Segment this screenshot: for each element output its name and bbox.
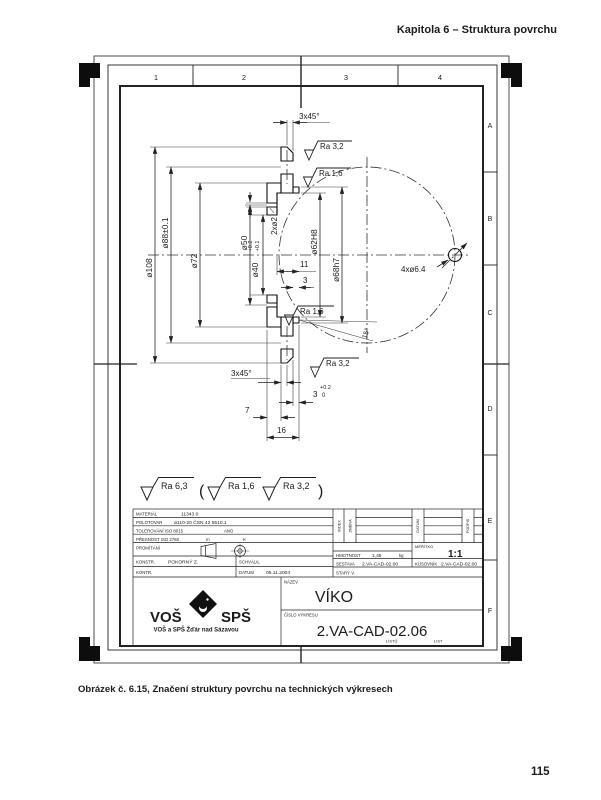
promitani-label: PROMÍTÁNÍ: [136, 546, 161, 551]
hmotnost-unit: kg: [399, 553, 404, 558]
meritko-value: 1:1: [448, 549, 463, 560]
presnost-m: m: [206, 537, 210, 542]
corner-mark-bottom-left: [79, 637, 100, 661]
datum-col-label: DATUM: [416, 519, 420, 532]
corner-mark-top-right: [501, 63, 522, 87]
zmena-label: ZMĚNA: [348, 519, 353, 533]
surface-note-paren-open: (: [199, 483, 205, 500]
figure-caption: Obrázek č. 6.15, Značení struktury povrc…: [78, 684, 393, 695]
datum-value: 05.11.2004: [266, 570, 290, 576]
part-boss-top: [267, 183, 281, 203]
surface-note-paren-close: ): [318, 483, 323, 500]
dim-len7: 7: [245, 406, 250, 415]
page: Kapitola 6 – Struktura povrchu Obrázek č…: [0, 0, 601, 800]
surface-note-alt2: Ra 3,2: [283, 481, 310, 491]
surface-note: Ra 6,3 ( Ra 1,6 Ra 3,2 ): [141, 478, 323, 501]
meritko-label: MĚŘÍTKO: [415, 544, 433, 549]
zone-row-f: F: [488, 608, 492, 615]
dim-d108: ø108: [144, 258, 154, 278]
dim-d40-hi: +0.2: [248, 241, 254, 252]
title-block: MATERIÁL 11343.0 POLOTOVAR ø110-20 ČSN 4…: [133, 509, 483, 646]
chapter-header: Kapitola 6 – Struktura povrchu: [397, 24, 557, 36]
konstr-label: KONSTR.: [136, 560, 155, 565]
ra32-top: Ra 3,2: [320, 142, 344, 151]
hmotnost-label: HMOTNOST: [336, 553, 361, 558]
outer-border: [108, 65, 497, 650]
kusovnik-label: KUSOVNÍK: [415, 562, 437, 567]
podpis-label: PODPIS: [466, 518, 470, 533]
surface-note-alt1: Ra 1,6: [228, 481, 255, 491]
material-label: MATERIÁL: [136, 512, 158, 517]
nazev-value: VÍKO: [315, 587, 353, 606]
part-hub-ring-bottom: [293, 317, 299, 323]
material-value: 11343.0: [181, 512, 199, 518]
page-number: 115: [531, 766, 550, 778]
dim-holes: 4xø6.4: [401, 265, 426, 274]
dim-d2: 2xø2: [270, 217, 279, 235]
listu-label: LISTŮ: [386, 639, 397, 644]
datum-label: DATUM: [239, 570, 254, 575]
zone-row-c: C: [487, 310, 492, 317]
dim-tol3-val: 3: [313, 390, 318, 399]
ra16-top: Ra 1,6: [319, 169, 343, 178]
surface-note-main: Ra 6,3: [161, 481, 188, 491]
stary-label: STARÝ V.: [336, 571, 355, 576]
logo-sps: SPŠ: [221, 608, 251, 626]
surface-marks: Ra 3,2 Ra 1,6 Ra 1,6 Ra 3,2: [285, 141, 360, 377]
zone-col-4: 4: [438, 73, 442, 82]
dim-chamfer-bot: 3x45°: [231, 369, 252, 378]
ra16-bot: Ra 1,6: [300, 307, 324, 316]
school-logo: VOŠ SPŠ VOŠ a SPŠ Žďár nad Sázavou: [150, 590, 251, 634]
dim-d88: ø88±0.1: [160, 217, 170, 248]
sestava-label: SESTAVA: [336, 562, 355, 567]
kusovnik-value: 2.VA-CAD-02.00: [441, 562, 477, 568]
dim-angle15: 15°: [361, 327, 372, 340]
part-boss-bottom: [267, 307, 281, 327]
logo-vos: VOŠ: [150, 608, 182, 626]
cislo-value: 2.VA-CAD-02.06: [317, 623, 428, 640]
schvalil-label: SCHVÁLIL: [239, 560, 260, 565]
dim-d40: ø40: [250, 262, 260, 277]
index-label: INDEX: [338, 520, 342, 532]
zone-row-b: B: [488, 216, 493, 223]
part-hub-ring-top: [293, 187, 299, 193]
polotovar-value: ø110-20 ČSN 42 5510.1: [174, 519, 227, 526]
zone-col-3: 3: [344, 73, 348, 82]
logo-tagline: VOŠ a SPŠ Žďár nad Sázavou: [153, 626, 238, 634]
dim-len11: 11: [300, 260, 309, 269]
zone-col-2: 2: [242, 73, 246, 82]
zone-col-1: 1: [154, 73, 158, 82]
dimensions: ø108 ø88±0.1 ø72 ø50 ø40 +0.2 +0.1 2xø2 …: [144, 112, 348, 441]
dim-tol3-lo: 0: [322, 393, 326, 399]
hmotnost-value: 1,49: [372, 553, 382, 559]
kontr-label: KONTR.: [136, 570, 152, 575]
tolerovani-value: ANO: [224, 529, 234, 534]
corner-mark-bottom-right: [501, 637, 522, 661]
cislo-label: ČÍSLO VÝKRESU: [284, 613, 318, 618]
polotovar-label: POLOTOVAR: [136, 520, 162, 525]
zone-row-a: A: [488, 123, 493, 130]
dim-len16: 16: [277, 426, 286, 435]
dim-d68: ø68h7: [331, 258, 341, 282]
dim-d40-lo: +0.1: [255, 241, 261, 252]
zone-row-e: E: [488, 518, 493, 525]
dim-len3: 3: [303, 276, 308, 285]
list-label: LIST: [434, 639, 443, 644]
dim-tol3-hi: +0.2: [320, 385, 331, 391]
sestava-value: 2.VA-CAD-02.00: [362, 562, 398, 568]
dim-chamfer-top: 3x45°: [299, 112, 320, 121]
nazev-label: NÁZEV: [284, 580, 298, 585]
ra32-bot: Ra 3,2: [326, 359, 350, 368]
konstr-value: POKORNÝ Z.: [168, 559, 198, 566]
dim-d72: ø72: [189, 253, 199, 268]
presnost-k: K: [243, 537, 246, 542]
zone-row-d: D: [487, 406, 492, 413]
presnost-label: PŘESNOST ISO 2768: [136, 537, 180, 542]
tolerovani-label: TOLEROVÁNÍ ISO 8015: [136, 529, 184, 534]
dim-d62: ø62H8: [309, 229, 319, 255]
corner-mark-top-left: [79, 63, 100, 87]
